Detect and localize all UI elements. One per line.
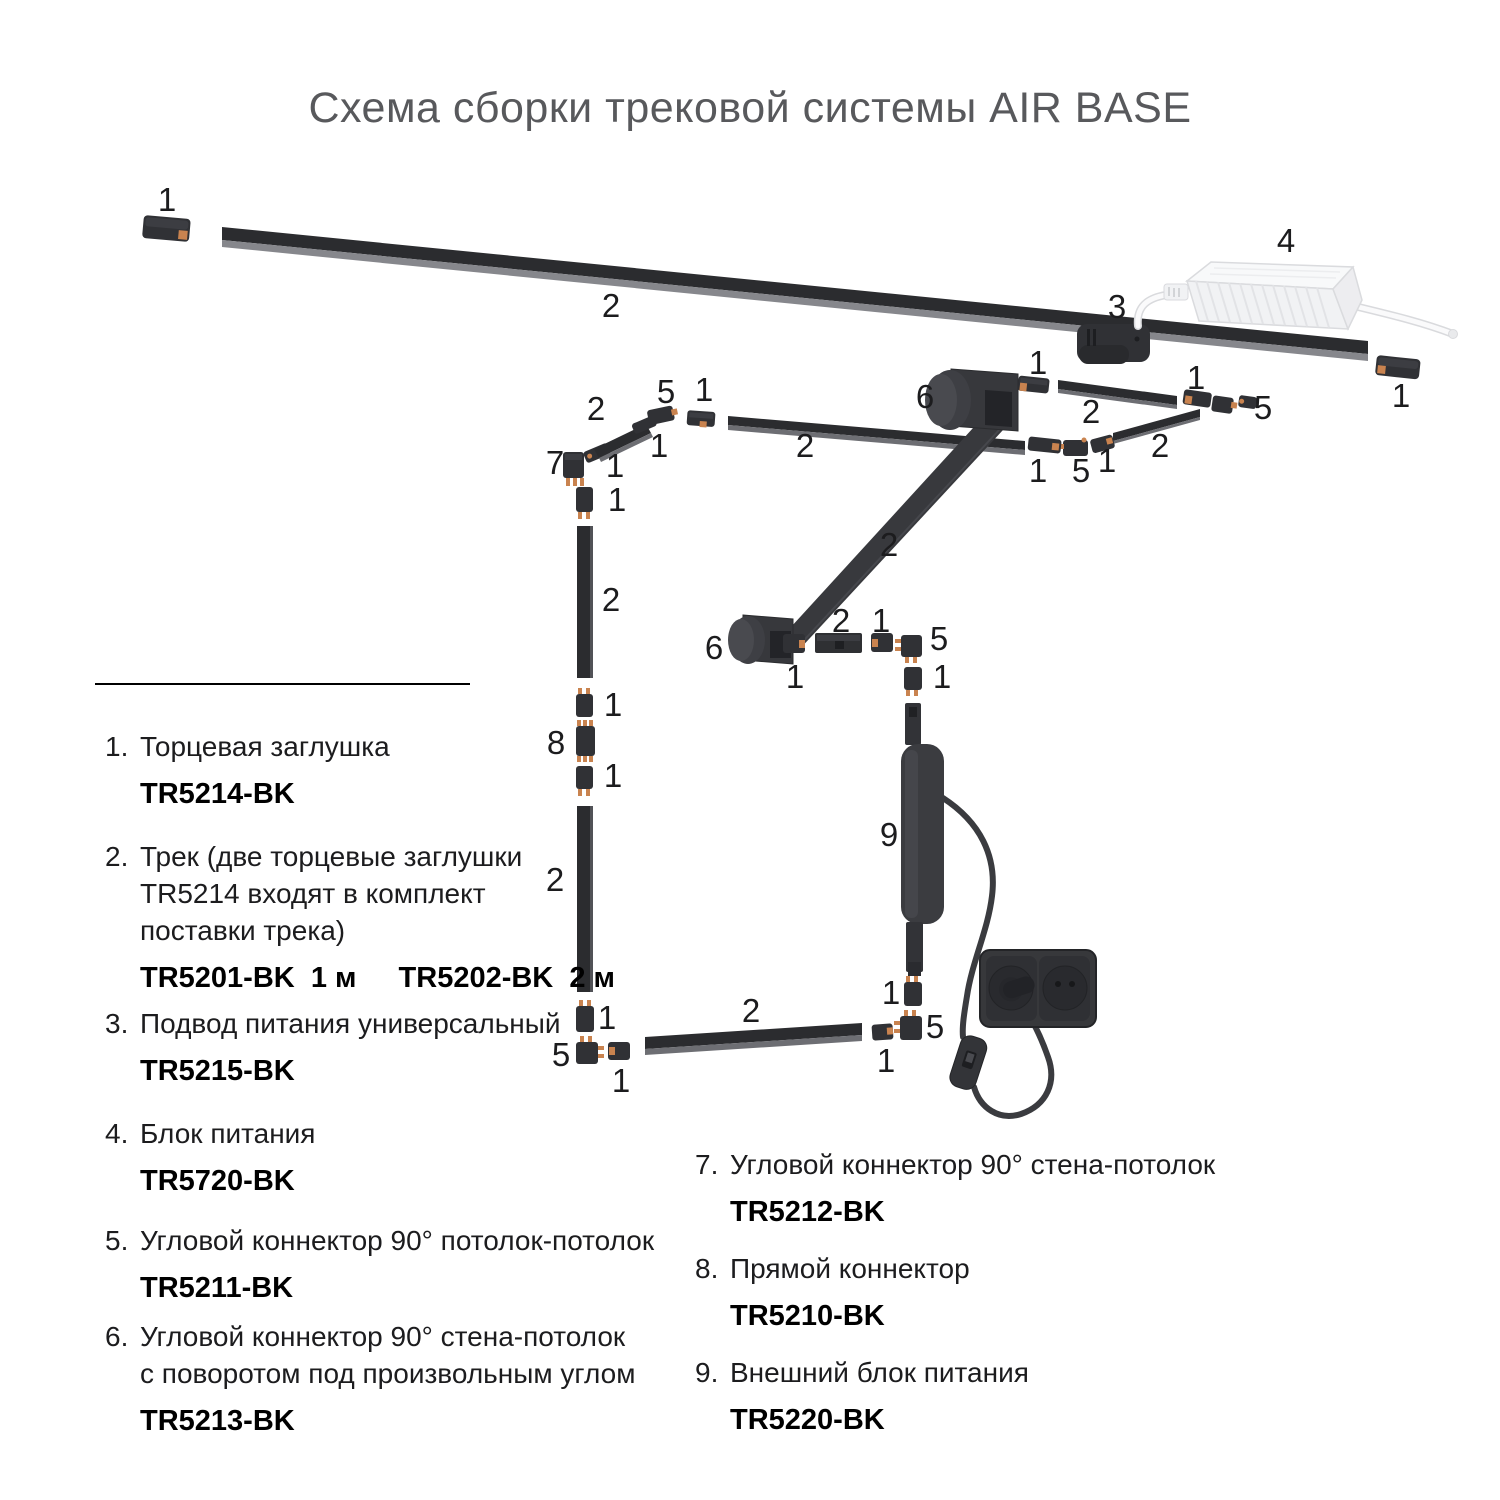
corner-connector-5 bbox=[1211, 391, 1257, 417]
legend-item-code: TR5210-BK bbox=[730, 1300, 885, 1333]
part-number-label: 5 bbox=[1254, 389, 1272, 426]
coupler-connector-1 bbox=[576, 688, 593, 717]
part-number-label: 1 bbox=[1029, 452, 1047, 489]
part-number-label: 2 bbox=[602, 287, 620, 324]
legend-item-name: с поворотом под произвольным углом bbox=[140, 1355, 625, 1392]
coupler-connector-1 bbox=[783, 634, 805, 653]
part-number-label: 1 bbox=[158, 181, 176, 218]
legend-item-code: TR5220-BK bbox=[730, 1404, 885, 1437]
part-number-label: 5 bbox=[1072, 452, 1090, 489]
part-number-label: 1 bbox=[1098, 442, 1116, 479]
part-number-label: 2 bbox=[587, 390, 605, 427]
legend-item-name: Угловой коннектор 90° потолок-потолок bbox=[140, 1222, 625, 1259]
legend-item-code: TR5202-BK 2 м bbox=[399, 962, 615, 995]
part-number-label: 9 bbox=[880, 816, 898, 853]
legend-item-1: 1. Торцевая заглушка TR5214-BK bbox=[105, 728, 625, 811]
legend-item-code: TR5720-BK bbox=[140, 1165, 295, 1198]
part-number-label: 2 bbox=[1082, 393, 1100, 430]
legend-item-number: 6. bbox=[105, 1318, 128, 1355]
part-number-label: 2 bbox=[602, 581, 620, 618]
legend-item-3: 3. Подвод питания универсальный TR5215-B… bbox=[105, 1005, 625, 1088]
part-number-label: 1 bbox=[650, 427, 668, 464]
legend-item-number: 4. bbox=[105, 1115, 128, 1152]
coupler-connector-1 bbox=[576, 487, 593, 519]
legend-item-number: 5. bbox=[105, 1222, 128, 1259]
coupler-connector-1 bbox=[904, 667, 922, 696]
legend-item-7: 7. Угловой коннектор 90° стена-потолок T… bbox=[695, 1146, 1215, 1229]
legend-item-name: Внешний блок питания bbox=[730, 1354, 1215, 1391]
legend-item-name: TR5214 входят в комплект bbox=[140, 875, 625, 912]
power-feed bbox=[1077, 324, 1150, 364]
end-cap-top-right bbox=[1375, 355, 1421, 379]
part-number-label: 2 bbox=[832, 602, 850, 639]
part-number-label: 1 bbox=[604, 686, 622, 723]
legend-item-name: Трек (две торцевые заглушки bbox=[140, 838, 625, 875]
part-number-label: 2 bbox=[880, 526, 898, 563]
part-number-label: 6 bbox=[916, 378, 934, 415]
legend-item-code: TR5213-BK bbox=[140, 1405, 295, 1438]
legend-item-code: TR5215-BK bbox=[140, 1055, 295, 1088]
psu-cable-tip bbox=[1449, 330, 1458, 339]
corner-connector-5 bbox=[894, 1010, 922, 1040]
corner-connector-7 bbox=[563, 452, 584, 486]
legend-item-2: 2. Трек (две торцевые заглушки TR5214 вх… bbox=[105, 838, 625, 995]
legend-item-code: TR5211-BK bbox=[140, 1272, 293, 1305]
legend-divider bbox=[95, 683, 470, 685]
wall-socket bbox=[980, 950, 1096, 1027]
part-number-label: 1 bbox=[606, 447, 624, 484]
right-loop bbox=[1017, 375, 1257, 456]
rotatable-connector-upper bbox=[925, 369, 1018, 431]
legend-item-number: 2. bbox=[105, 838, 128, 875]
part-number-label: 1 bbox=[608, 481, 626, 518]
part-number-label: 5 bbox=[930, 620, 948, 657]
legend-item-code: TR5201-BK 1 м bbox=[140, 962, 356, 995]
coupler-connector-1 bbox=[904, 976, 922, 1006]
external-power-supply bbox=[901, 703, 944, 976]
legend-item-name: Прямой коннектор bbox=[730, 1250, 1215, 1287]
part-number-label: 1 bbox=[1029, 344, 1047, 381]
legend-item-number: 1. bbox=[105, 728, 128, 765]
coupler-connector-1 bbox=[686, 410, 715, 428]
part-number-label: 5 bbox=[657, 373, 675, 410]
legend-item-5: 5. Угловой коннектор 90° потолок-потолок… bbox=[105, 1222, 625, 1305]
part-number-label: 2 bbox=[1151, 427, 1169, 464]
part-number-label: 3 bbox=[1108, 288, 1126, 325]
legend-item-number: 8. bbox=[695, 1250, 718, 1287]
legend-item-9: 9. Внешний блок питания TR5220-BK bbox=[695, 1354, 1215, 1437]
part-number-label: 1 bbox=[1392, 377, 1410, 414]
legend-item-number: 7. bbox=[695, 1146, 718, 1183]
legend-item-8: 8. Прямой коннектор TR5210-BK bbox=[695, 1250, 1215, 1333]
part-number-label: 1 bbox=[882, 974, 900, 1011]
legend-item-number: 3. bbox=[105, 1005, 128, 1042]
end-cap-top-left bbox=[142, 215, 191, 242]
part-number-label: 1 bbox=[1187, 359, 1205, 396]
part-number-label: 1 bbox=[695, 371, 713, 408]
part-number-label: 7 bbox=[546, 444, 564, 481]
legend-item-name: Торцевая заглушка bbox=[140, 728, 625, 765]
legend-item-code: TR5212-BK bbox=[730, 1196, 885, 1229]
legend-item-4: 4. Блок питания TR5720-BK bbox=[105, 1115, 625, 1198]
legend-item-name: Блок питания bbox=[140, 1115, 625, 1152]
cord-switch bbox=[947, 1033, 989, 1092]
part-number-label: 2 bbox=[796, 427, 814, 464]
coupler-connector-1 bbox=[871, 1023, 893, 1040]
part-number-label: 5 bbox=[926, 1008, 944, 1045]
legend-item-name: Угловой коннектор 90° стена-потолок bbox=[140, 1318, 625, 1355]
part-number-label: 6 bbox=[705, 629, 723, 666]
corner-connector-5 bbox=[895, 635, 922, 663]
legend-item-name: Угловой коннектор 90° стена-потолок bbox=[730, 1146, 1215, 1183]
part-number-label: 1 bbox=[872, 602, 890, 639]
legend-item-number: 9. bbox=[695, 1354, 718, 1391]
legend-item-6: 6. Угловой коннектор 90° стена-потолок с… bbox=[105, 1318, 625, 1438]
legend-item-name: поставки трека) bbox=[140, 912, 625, 949]
page: Схема сборки трековой системы AIR BASE bbox=[0, 0, 1500, 1500]
part-number-label: 2 bbox=[742, 992, 760, 1029]
psu-plug-nub bbox=[1164, 284, 1188, 300]
part-number-label: 1 bbox=[877, 1042, 895, 1079]
part-number-label: 4 bbox=[1277, 222, 1295, 259]
psu-cable-right bbox=[1350, 305, 1453, 334]
part-number-label: 1 bbox=[786, 658, 804, 695]
legend-item-name: Подвод питания универсальный bbox=[140, 1005, 625, 1042]
part-number-label: 1 bbox=[933, 658, 951, 695]
legend-item-code: TR5214-BK bbox=[140, 778, 295, 811]
